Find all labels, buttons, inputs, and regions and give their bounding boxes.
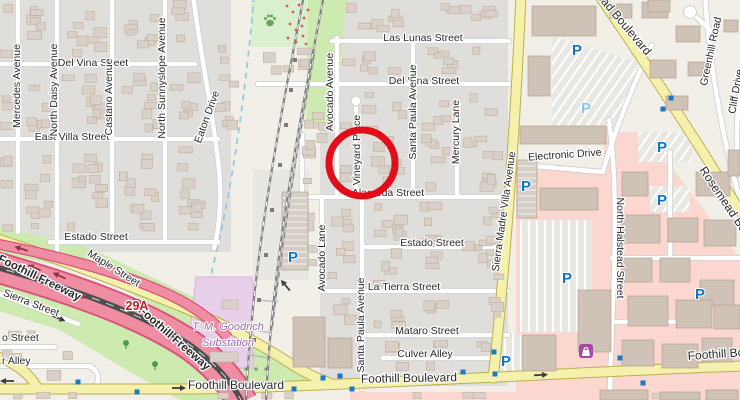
flower-dot-icon bbox=[302, 35, 305, 38]
traffic-signal-icon bbox=[135, 390, 140, 395]
street-label-foothill-blvd-west: Foothill Boulevard bbox=[188, 378, 284, 392]
flower-dot-icon bbox=[307, 9, 310, 12]
flower-dot-icon bbox=[295, 29, 298, 32]
traffic-signal-icon bbox=[321, 376, 326, 381]
street-label-del-vina-left: Del Vina Street bbox=[58, 57, 129, 69]
flower-dot-icon bbox=[289, 23, 292, 26]
parking-icon: P bbox=[288, 249, 298, 266]
street-label-mercury-lane: Mercury Lane bbox=[450, 100, 462, 164]
street-label-culver-alley: Culver Alley bbox=[397, 348, 453, 360]
traffic-signal-icon bbox=[292, 387, 297, 392]
street-label-avocado-lane: Avocado Lane bbox=[316, 224, 328, 291]
street-label-r-alley-clipped: r Alley bbox=[2, 355, 31, 367]
flower-dot-icon bbox=[295, 41, 298, 44]
street-label-vineyard-place: Vineyard Place bbox=[351, 115, 363, 186]
street-label-north-halstead: North Halstead Street bbox=[614, 198, 626, 299]
flower-dot-icon bbox=[292, 11, 295, 14]
flower-dot-icon bbox=[305, 43, 308, 46]
traffic-signal-icon bbox=[492, 350, 497, 355]
traffic-signal-icon bbox=[461, 370, 466, 375]
parking-icon: P bbox=[695, 286, 705, 303]
traffic-signal-icon bbox=[493, 372, 498, 377]
street-label-castano: Castano Avenue bbox=[103, 58, 115, 135]
street-label-o-street-clipped: o Street bbox=[2, 332, 39, 344]
street-label-avocado-avenue: Avocado Avenue bbox=[324, 53, 336, 132]
traffic-signal-icon bbox=[641, 381, 646, 386]
street-label-estado-left: Estado Street bbox=[64, 231, 128, 243]
parking-icon: P bbox=[501, 353, 511, 370]
traffic-signal-icon bbox=[661, 107, 666, 112]
flower-dot-icon bbox=[286, 5, 289, 8]
parking-icon: P bbox=[562, 270, 572, 287]
street-label-del-vina-center: Del Vina Street bbox=[389, 75, 460, 87]
poi-label-substation-line2: Substation bbox=[202, 337, 254, 349]
flower-dot-icon bbox=[301, 25, 304, 28]
street-label-la-tierra: La Tierra Street bbox=[368, 281, 440, 293]
street-label-santa-paula-north: Santa Paula Avenue bbox=[407, 64, 419, 159]
map-canvas[interactable]: PPPPPPPPP Las Lunas StreetDel Vina Stree… bbox=[0, 0, 740, 400]
street-label-mercedes: Mercedes Avenue bbox=[11, 44, 23, 128]
traffic-signal-icon bbox=[618, 356, 623, 361]
parking-icon: P bbox=[572, 42, 582, 59]
street-label-east-villa: East Villa Street bbox=[35, 131, 110, 143]
street-label-foothill-blvd-center: Foothill Boulevard bbox=[361, 370, 457, 386]
street-label-mataro: Mataro Street bbox=[395, 325, 459, 337]
parking-icon: P bbox=[657, 139, 667, 156]
street-label-north-sunnyslope: North Sunnyslope Avenue bbox=[156, 17, 168, 138]
flower-dot-icon bbox=[298, 4, 301, 7]
exit-ref-29a: 29A bbox=[126, 299, 149, 313]
street-label-estado-center: Estado Street bbox=[400, 237, 464, 249]
traffic-signal-icon bbox=[669, 96, 674, 101]
parking-icon: P bbox=[581, 100, 591, 117]
flower-dot-icon bbox=[303, 17, 306, 20]
flower-dot-icon bbox=[287, 37, 290, 40]
traffic-signal-icon bbox=[350, 387, 355, 392]
street-label-santa-paula-south: Santa Paula Avenue bbox=[355, 277, 367, 372]
street-label-north-daisy: North Daisy Avenue bbox=[48, 44, 60, 137]
parking-icon: P bbox=[657, 192, 667, 209]
traffic-signal-icon bbox=[338, 374, 343, 379]
poi-label-substation-line1: T. M. Goodrich bbox=[192, 321, 264, 333]
shop-icon bbox=[579, 344, 593, 358]
street-label-las-lunas: Las Lunas Street bbox=[383, 32, 462, 44]
traffic-signal-icon bbox=[76, 380, 81, 385]
parking-icon: P bbox=[521, 178, 531, 195]
